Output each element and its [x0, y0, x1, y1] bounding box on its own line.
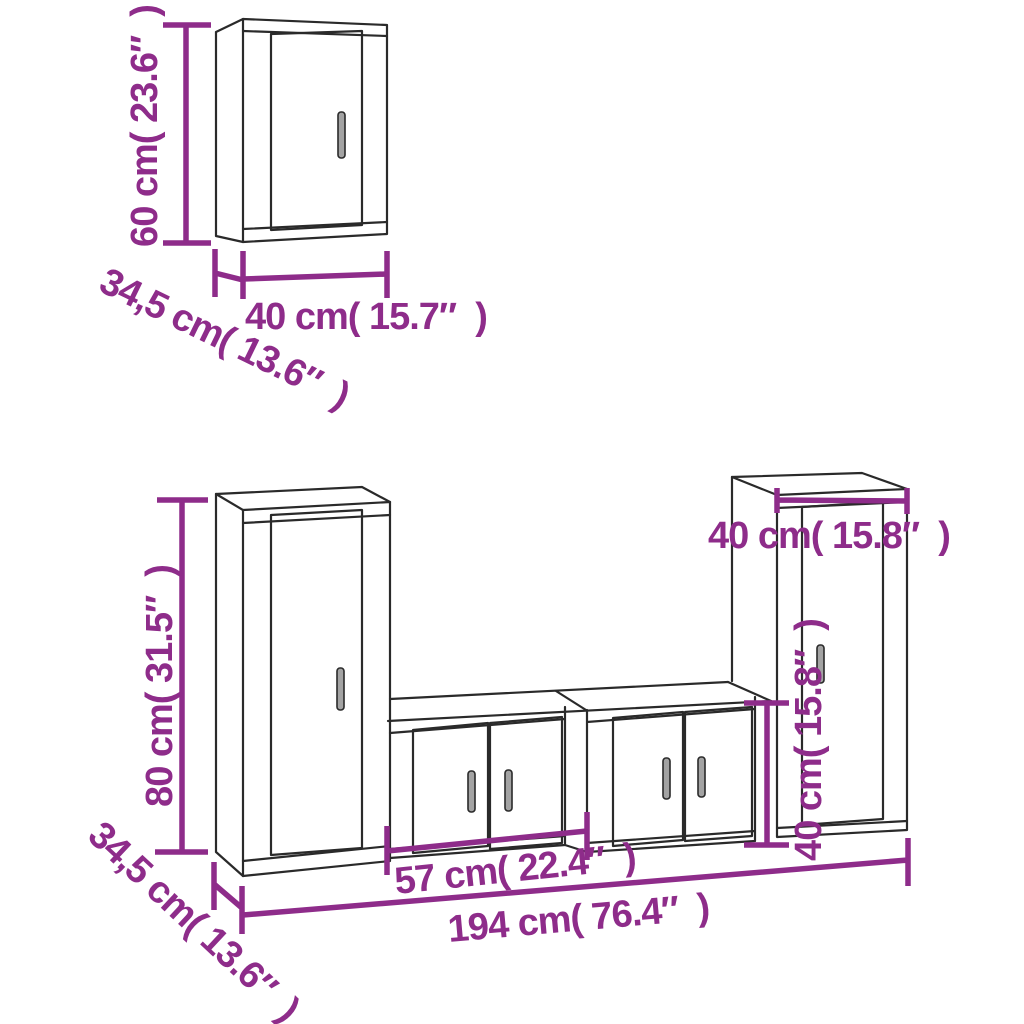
countertop-division-edge — [556, 691, 586, 710]
cabinet-top-face — [216, 487, 390, 502]
cabinet-door-panel — [271, 31, 362, 230]
height-dimension-label: 60 cm( 23.6″ ) — [124, 5, 166, 247]
depth-dimension-label: 34,5 cm( 13.6″ ) — [80, 814, 307, 1024]
cabinet-top-band — [243, 515, 390, 523]
right-width-dimension-label: 40 cm( 15.8″ ) — [708, 515, 950, 557]
diagram-canvas: 60 cm( 23.6″ ) 34,5 cm( 13.6″ ) 40 cm( 1… — [0, 0, 1024, 1024]
cabinet-side-panel — [216, 494, 243, 876]
cabinet-front-face — [243, 502, 390, 876]
cabinet-door-panel-left — [613, 712, 683, 846]
door-handle — [698, 757, 705, 797]
tv-wall-set-dimensions: 80 cm( 31.5″ ) 34,5 cm( 13.6″ ) 57 cm( 2… — [80, 488, 950, 1024]
door-handle — [468, 771, 475, 812]
tall-height-dimension-label: 80 cm( 31.5″ ) — [139, 565, 181, 807]
countertop-back-edge — [390, 682, 728, 699]
cabinet-bottom-band — [243, 846, 390, 861]
countertop-right-edge — [728, 682, 771, 701]
furniture-dimension-diagram: 60 cm( 23.6″ ) 34,5 cm( 13.6″ ) 40 cm( 1… — [0, 0, 1024, 1024]
cabinet-front-face — [243, 19, 387, 242]
cabinet-door-panel-right — [685, 707, 752, 841]
cabinet-door-panel-left — [413, 723, 488, 853]
countertop-front-edge — [388, 701, 771, 721]
low-cabinets-top-surface — [388, 682, 771, 721]
cabinet-top-face — [732, 473, 907, 495]
wall-cabinet-dimensions: 60 cm( 23.6″ ) 34,5 cm( 13.6″ ) 40 cm( 1… — [93, 5, 487, 417]
depth-dimension-label: 34,5 cm( 13.6″ ) — [93, 260, 356, 417]
cabinet-door-panel-right — [490, 717, 562, 849]
width-dimension-label: 40 cm( 15.7″ ) — [245, 296, 487, 338]
cabinet-door-panel — [271, 510, 362, 855]
wall-cabinet-drawing — [216, 19, 387, 242]
low-height-dimension-label: 40 cm( 15.8″ ) — [788, 619, 830, 861]
cabinet-side-panel — [216, 19, 243, 242]
door-handle — [663, 758, 670, 799]
door-handle — [505, 770, 512, 811]
cabinet-front-frame — [565, 697, 755, 852]
low-cabinet-right — [565, 697, 755, 852]
left-tall-cabinet — [216, 487, 390, 876]
width-dimension-line — [243, 251, 387, 298]
door-handle — [338, 112, 345, 158]
height-dimension-line — [163, 25, 211, 243]
door-handle — [337, 668, 344, 710]
low-height-dimension-line — [744, 703, 789, 845]
depth-dimension-line — [215, 249, 243, 299]
